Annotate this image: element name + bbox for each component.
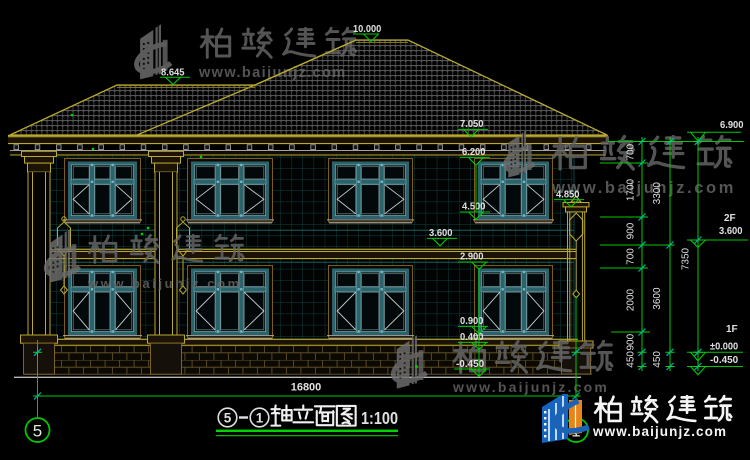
svg-text:www.baijunjz.com: www.baijunjz.com xyxy=(592,424,727,439)
svg-text:www.baijunjz.com: www.baijunjz.com xyxy=(452,379,609,395)
svg-text:3.600: 3.600 xyxy=(719,226,743,237)
svg-text:±0.000: ±0.000 xyxy=(710,342,739,353)
svg-text:7.050: 7.050 xyxy=(460,119,484,130)
svg-text:6.200: 6.200 xyxy=(462,147,486,158)
svg-text:700: 700 xyxy=(626,248,637,265)
svg-text:0.900: 0.900 xyxy=(460,316,484,327)
svg-text:1F: 1F xyxy=(726,324,738,335)
svg-text:www.baijunjz.com: www.baijunjz.com xyxy=(198,65,347,81)
svg-text:2F: 2F xyxy=(724,213,736,224)
svg-text:-0.450: -0.450 xyxy=(710,355,739,366)
svg-text:2.900: 2.900 xyxy=(460,252,484,263)
svg-text:900: 900 xyxy=(626,333,637,350)
svg-text:7350: 7350 xyxy=(681,247,692,270)
svg-text:900: 900 xyxy=(626,222,637,239)
svg-text:450: 450 xyxy=(652,351,663,368)
svg-text:4.500: 4.500 xyxy=(462,202,486,213)
svg-text:5: 5 xyxy=(33,422,42,441)
svg-text:5: 5 xyxy=(224,411,232,426)
svg-text:3600: 3600 xyxy=(652,287,663,310)
svg-text:-0.450: -0.450 xyxy=(456,359,485,370)
svg-text:6.900: 6.900 xyxy=(720,120,744,131)
svg-text:4.850: 4.850 xyxy=(556,190,580,201)
svg-text:1700: 1700 xyxy=(626,178,637,201)
svg-text:1: 1 xyxy=(256,411,264,426)
svg-text:1:100: 1:100 xyxy=(361,408,398,428)
svg-text:450: 450 xyxy=(626,351,637,368)
svg-text:2000: 2000 xyxy=(626,288,637,311)
svg-text:www.baijunjz.com: www.baijunjz.com xyxy=(87,276,242,291)
svg-text:3300: 3300 xyxy=(652,182,663,205)
svg-text:3.600: 3.600 xyxy=(429,228,453,239)
svg-text:700: 700 xyxy=(626,143,637,160)
svg-text:16800: 16800 xyxy=(291,382,322,394)
svg-text:0.400: 0.400 xyxy=(460,332,484,343)
